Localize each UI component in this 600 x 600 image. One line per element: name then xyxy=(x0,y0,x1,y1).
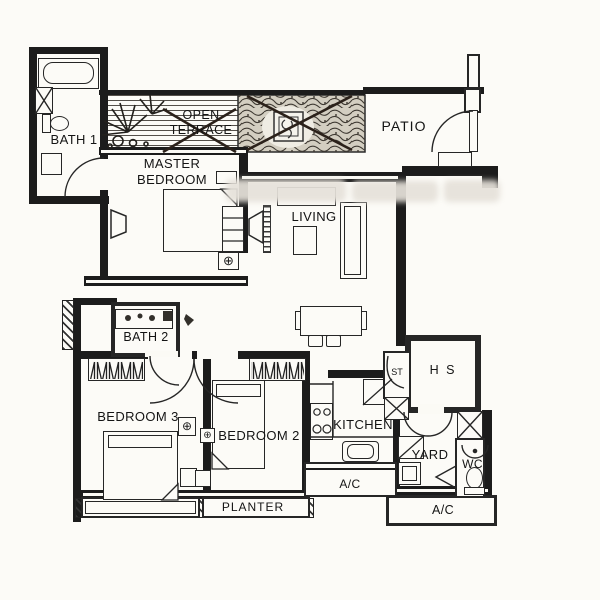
watermark-blur xyxy=(444,180,500,202)
room-label-wc: WC xyxy=(459,457,486,471)
room-label-household-shelter: H S xyxy=(422,363,464,378)
room-label-yard: YARD xyxy=(404,447,456,463)
room-label-store: ST xyxy=(388,367,406,378)
room-label-master-bedroom: MASTER BEDROOM xyxy=(108,156,236,187)
room-label-bedroom2: BEDROOM 2 xyxy=(215,428,303,444)
shelf-rungs xyxy=(222,218,244,241)
floor-plan: ⊕ ⊕ ⊕ xyxy=(0,0,600,600)
room-label-bedroom3: BEDROOM 3 xyxy=(92,409,184,425)
room-label-living: LIVING xyxy=(283,209,345,225)
room-label-ac-yard: A/C xyxy=(426,503,460,518)
watermark-blur xyxy=(226,179,346,202)
watermark-blur xyxy=(352,181,438,202)
room-label-bath1: BATH 1 xyxy=(42,132,106,148)
room-label-ac-kitchen: A/C xyxy=(334,477,366,491)
vanity-items xyxy=(125,311,194,326)
room-label-patio: PATIO xyxy=(374,118,434,135)
room-label-bath2: BATH 2 xyxy=(117,330,175,345)
tv-icon xyxy=(111,210,263,243)
room-label-planter: PLANTER xyxy=(213,500,293,514)
stove-burners xyxy=(313,409,331,433)
room-label-kitchen: KITCHEN xyxy=(330,417,396,433)
room-label-open-terrace: OPEN TERRACE xyxy=(158,108,244,138)
